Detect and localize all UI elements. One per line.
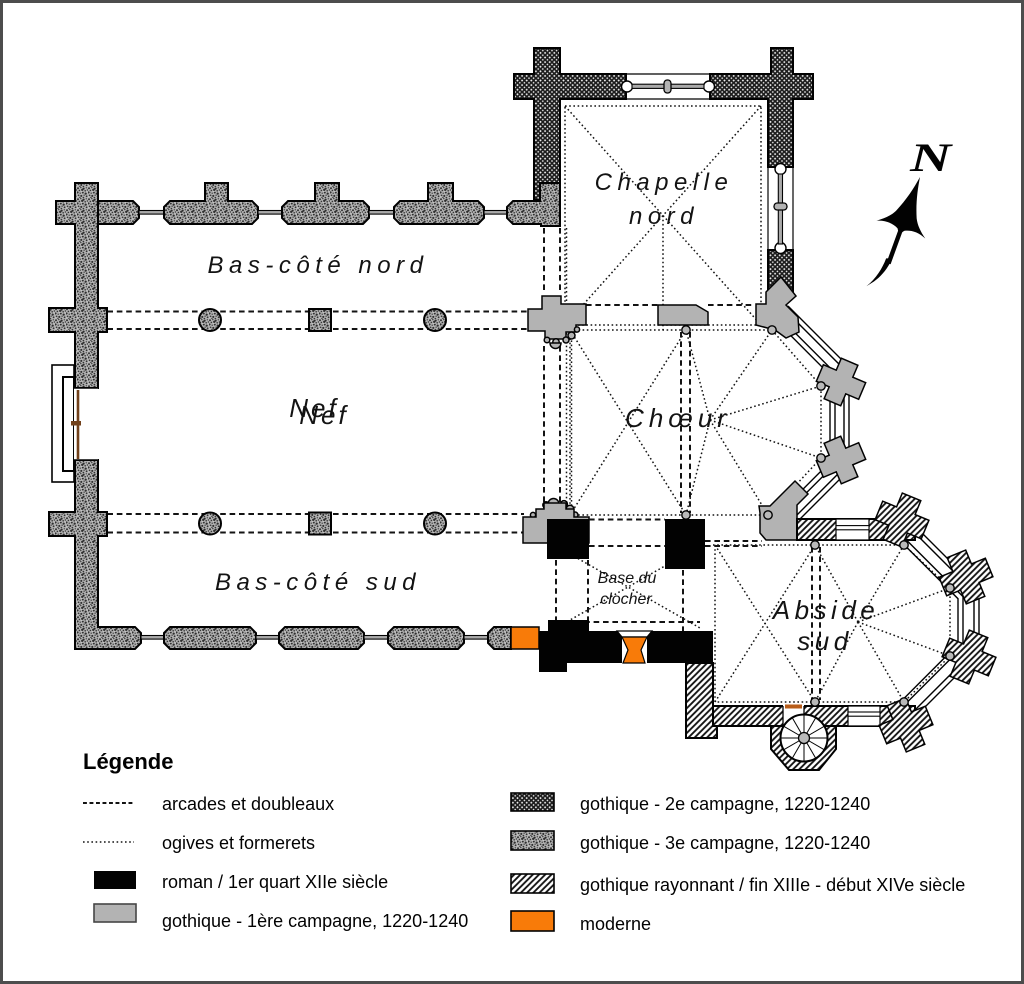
svg-text:moderne: moderne (580, 914, 651, 934)
svg-text:gothique - 1ère campagne, 1220: gothique - 1ère campagne, 1220-1240 (162, 911, 468, 931)
svg-text:ogives et formerets: ogives et formerets (162, 833, 315, 853)
svg-text:Bas-côté sud: Bas-côté sud (215, 569, 421, 596)
svg-text:Légende: Légende (83, 749, 173, 774)
svg-text:gothique - 3e campagne, 1220-1: gothique - 3e campagne, 1220-1240 (580, 833, 870, 853)
svg-text:nord: nord (629, 203, 699, 230)
svg-text:Abside: Abside (771, 595, 880, 625)
svg-text:Base du: Base du (598, 570, 657, 587)
svg-text:Chœur: Chœur (625, 403, 731, 433)
svg-text:Chapelle: Chapelle (595, 169, 734, 196)
svg-text:Bas-côté nord: Bas-côté nord (208, 252, 429, 279)
svg-text:clocher: clocher (600, 591, 652, 608)
svg-text:arcades et doubleaux: arcades et doubleaux (162, 794, 334, 814)
svg-text:roman / 1er quart XIIe siècle: roman / 1er quart XIIe siècle (162, 872, 388, 892)
svg-text:sud: sud (797, 626, 852, 656)
svg-text:gothique - 2e campagne, 1220-1: gothique - 2e campagne, 1220-1240 (580, 794, 870, 814)
svg-text:Nef: Nef (299, 400, 348, 430)
svg-text:N: N (909, 135, 953, 180)
svg-text:gothique rayonnant / fin XIIIe: gothique rayonnant / fin XIIIe - début X… (580, 875, 965, 895)
